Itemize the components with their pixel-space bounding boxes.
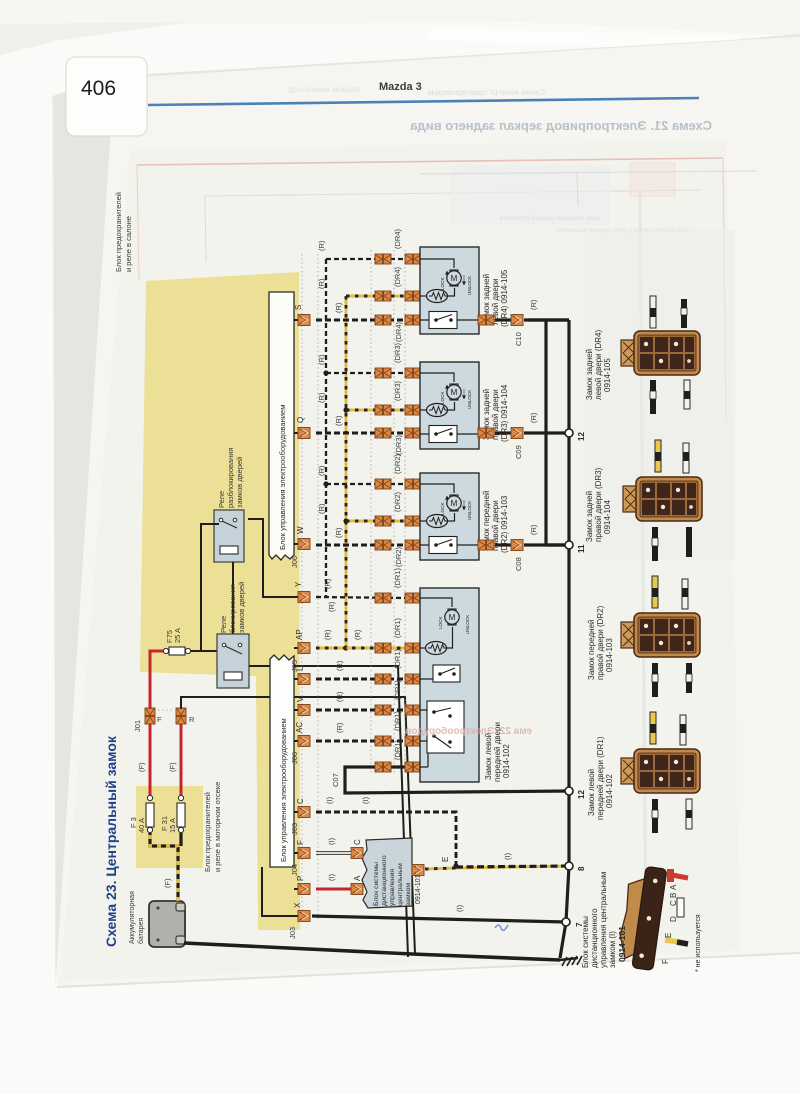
svg-text:P: P	[296, 876, 305, 881]
svg-text:Схема жано-рт правтеризводна: Схема жано-рт правтеризводна	[427, 88, 545, 97]
svg-text:F: F	[661, 959, 670, 964]
svg-text:(I): (I)	[361, 796, 370, 804]
svg-text:U: U	[296, 665, 305, 671]
svg-text:M: M	[449, 613, 456, 622]
svg-text:и реле в салоне: и реле в салоне	[124, 216, 133, 272]
svg-text:(R): (R)	[317, 465, 326, 476]
svg-text:LOCK: LOCK	[438, 616, 443, 629]
svg-text:(R): (R)	[323, 578, 332, 589]
svg-text:AC: AC	[295, 722, 304, 733]
svg-text:W: W	[296, 526, 305, 534]
svg-text:S: S	[294, 305, 303, 310]
svg-text:Схема 23. Центральный замок: Схема 23. Центральный замок	[103, 735, 119, 947]
svg-text:25 A: 25 A	[173, 628, 182, 643]
svg-text:Схема 21. Электропривод зеркал: Схема 21. Электропривод зеркал заднего в…	[409, 118, 712, 133]
svg-text:(I): (I)	[327, 873, 336, 881]
svg-text:J04: J04	[290, 864, 299, 876]
svg-text:Блок системы: Блок системы	[373, 862, 380, 906]
svg-text:15 A: 15 A	[168, 818, 177, 833]
svg-text:левой двери (DR4): левой двери (DR4)	[594, 329, 603, 400]
svg-text:C10: C10	[514, 332, 523, 346]
svg-text:(DR2): (DR2)	[393, 491, 402, 512]
svg-text:A: A	[353, 875, 362, 881]
svg-text:Y: Y	[294, 581, 303, 587]
svg-text:8: 8	[577, 866, 586, 871]
svg-text:(F): (F)	[168, 762, 177, 772]
svg-text:замком: замком	[405, 883, 412, 906]
svg-text:(DR4): (DR4)	[393, 228, 402, 249]
svg-text:(DR1): (DR1)	[393, 710, 402, 731]
svg-text:X: X	[293, 902, 302, 908]
svg-text:(R): (R)	[317, 392, 326, 403]
svg-text:(I): (I)	[325, 796, 334, 804]
svg-text:* не используется: * не используется	[695, 914, 702, 972]
svg-text:0914-103: 0914-103	[605, 638, 614, 672]
svg-text:(R): (R)	[529, 299, 538, 310]
svg-text:C09: C09	[514, 445, 523, 459]
svg-text:Замок левой: Замок левой	[587, 769, 596, 816]
svg-text:замком (I): замком (I)	[608, 931, 617, 968]
svg-text:0914-104: 0914-104	[603, 500, 612, 534]
svg-text:J06: J06	[290, 556, 299, 568]
svg-text:Mazda 3: Mazda 3	[379, 81, 422, 93]
svg-text:замков дверей: замков дверей	[235, 457, 244, 508]
svg-text:апдиом кеазеexcqp: апдиом кеазеexcqp	[288, 85, 360, 94]
svg-text:B: B	[669, 893, 678, 898]
svg-text:(DR3): (DR3)	[393, 380, 402, 401]
svg-text:F: F	[296, 840, 305, 845]
svg-text:дистанционного: дистанционного	[381, 855, 388, 906]
svg-text:(F): (F)	[137, 762, 146, 772]
svg-text:(R): (R)	[335, 691, 344, 702]
svg-text:12: 12	[577, 790, 586, 799]
svg-text:(DR3): (DR3)	[393, 342, 402, 363]
svg-text:(R): (R)	[529, 524, 538, 535]
svg-text:Q: Q	[296, 417, 305, 423]
svg-text:(R): (R)	[327, 601, 336, 612]
svg-text:0914-102: 0914-102	[605, 774, 614, 808]
svg-text:(R): (R)	[317, 503, 326, 514]
svg-text:C: C	[353, 839, 362, 845]
svg-text:(DR1): (DR1)	[393, 679, 402, 700]
svg-text:Замок задней: Замок задней	[585, 491, 594, 542]
svg-text:(F): (F)	[163, 878, 172, 888]
svg-text:(I): (I)	[455, 904, 464, 912]
svg-text:(I): (I)	[503, 852, 512, 860]
svg-text:C: C	[669, 900, 678, 906]
svg-text:Реле: Реле	[219, 616, 228, 633]
svg-text:(DR2): (DR2)	[393, 453, 402, 474]
svg-text:Блок предохранителей: Блок предохранителей	[114, 192, 123, 272]
svg-text:0914-102: 0914-102	[502, 744, 511, 778]
svg-text:(R): (R)	[323, 629, 332, 640]
svg-text:C07: C07	[331, 773, 340, 787]
svg-text:Аккумуляторная: Аккумуляторная	[129, 891, 136, 944]
svg-text:(R): (R)	[529, 412, 538, 423]
svg-text:управления: управления	[389, 869, 396, 906]
svg-text:J06: J06	[290, 752, 299, 764]
svg-text:передней двери (DR1): передней двери (DR1)	[596, 736, 605, 820]
svg-text:C: C	[296, 798, 305, 804]
svg-text:(I): (I)	[327, 837, 336, 845]
svg-text:Блок системы: Блок системы	[581, 916, 590, 968]
svg-text:и реле в моторном отсеке: и реле в моторном отсеке	[213, 782, 222, 872]
svg-text:батарея: батарея	[137, 918, 145, 944]
svg-text:C08: C08	[514, 557, 523, 571]
svg-text:замков дверей: замков дверей	[237, 582, 246, 633]
svg-text:11: 11	[577, 544, 586, 553]
svg-text:Замок задней: Замок задней	[585, 349, 594, 400]
svg-text:(DR1): (DR1)	[393, 648, 402, 669]
svg-text:разблокирования: разблокирования	[226, 448, 235, 508]
svg-text:реле передних дверей установка: реле передних дверей установка	[499, 214, 600, 222]
svg-text:(DR2): (DR2)	[394, 546, 403, 567]
svg-text:Реле: Реле	[217, 491, 226, 508]
svg-text:E: E	[664, 933, 673, 938]
svg-text:(DR4) 0914-105: (DR4) 0914-105	[500, 269, 509, 327]
svg-text:J01: J01	[133, 720, 142, 732]
svg-text:Замок передней: Замок передней	[587, 620, 596, 680]
svg-text:0914-101: 0914-101	[617, 926, 627, 962]
svg-text:(DR4): (DR4)	[394, 321, 403, 342]
svg-text:12: 12	[577, 432, 586, 441]
svg-text:0914-101: 0914-101	[415, 874, 422, 904]
svg-text:(R): (R)	[335, 722, 344, 733]
svg-text:40 A: 40 A	[137, 818, 146, 833]
svg-text:0914-105: 0914-105	[603, 358, 612, 392]
svg-text:(R): (R)	[317, 354, 326, 365]
svg-text:F: F	[157, 715, 162, 724]
svg-text:(R): (R)	[334, 415, 343, 426]
svg-text:V: V	[296, 696, 305, 702]
svg-text:J03: J03	[288, 927, 297, 939]
svg-text:J03: J03	[290, 823, 299, 835]
svg-text:UNLOCK: UNLOCK	[465, 614, 470, 634]
svg-text:(R): (R)	[317, 278, 326, 289]
svg-text:(R): (R)	[317, 240, 326, 251]
svg-text:E: E	[441, 857, 450, 862]
svg-text:D: D	[669, 916, 678, 922]
svg-text:центральным: центральным	[397, 863, 404, 906]
svg-text:Замок левой: Замок левой	[484, 733, 493, 780]
svg-text:R: R	[189, 715, 195, 724]
svg-text:406: 406	[81, 77, 116, 100]
svg-text:(R): (R)	[353, 629, 362, 640]
svg-text:дистанционного: дистанционного	[590, 908, 599, 968]
svg-text:правой двери (DR2): правой двери (DR2)	[596, 605, 605, 680]
svg-text:управления центральным: управления центральным	[599, 872, 608, 968]
svg-text:(DR3): (DR3)	[394, 434, 403, 455]
svg-text:(R): (R)	[334, 527, 343, 538]
svg-text:AP: AP	[295, 629, 304, 640]
svg-text:Блок предохранителей: Блок предохранителей	[203, 792, 212, 872]
svg-text:блокирования: блокирования	[228, 584, 237, 633]
svg-text:правой двери (DR3): правой двери (DR3)	[594, 467, 603, 542]
svg-text:(DR4): (DR4)	[393, 266, 402, 287]
svg-text:(DR1): (DR1)	[393, 567, 402, 588]
svg-text:Блок управления электрооборудо: Блок управления электрооборудованием	[279, 718, 288, 862]
svg-text:(R): (R)	[335, 660, 344, 671]
svg-text:(R): (R)	[334, 302, 343, 313]
svg-text:A: A	[669, 884, 678, 890]
svg-text:Блок управления электрооборудо: Блок управления электрооборудованием	[278, 405, 287, 550]
svg-text:(DR1): (DR1)	[393, 739, 402, 760]
svg-text:(DR1): (DR1)	[393, 617, 402, 638]
svg-text:ема 22. Электрооборудов: ема 22. Электрооборудов	[405, 725, 532, 737]
